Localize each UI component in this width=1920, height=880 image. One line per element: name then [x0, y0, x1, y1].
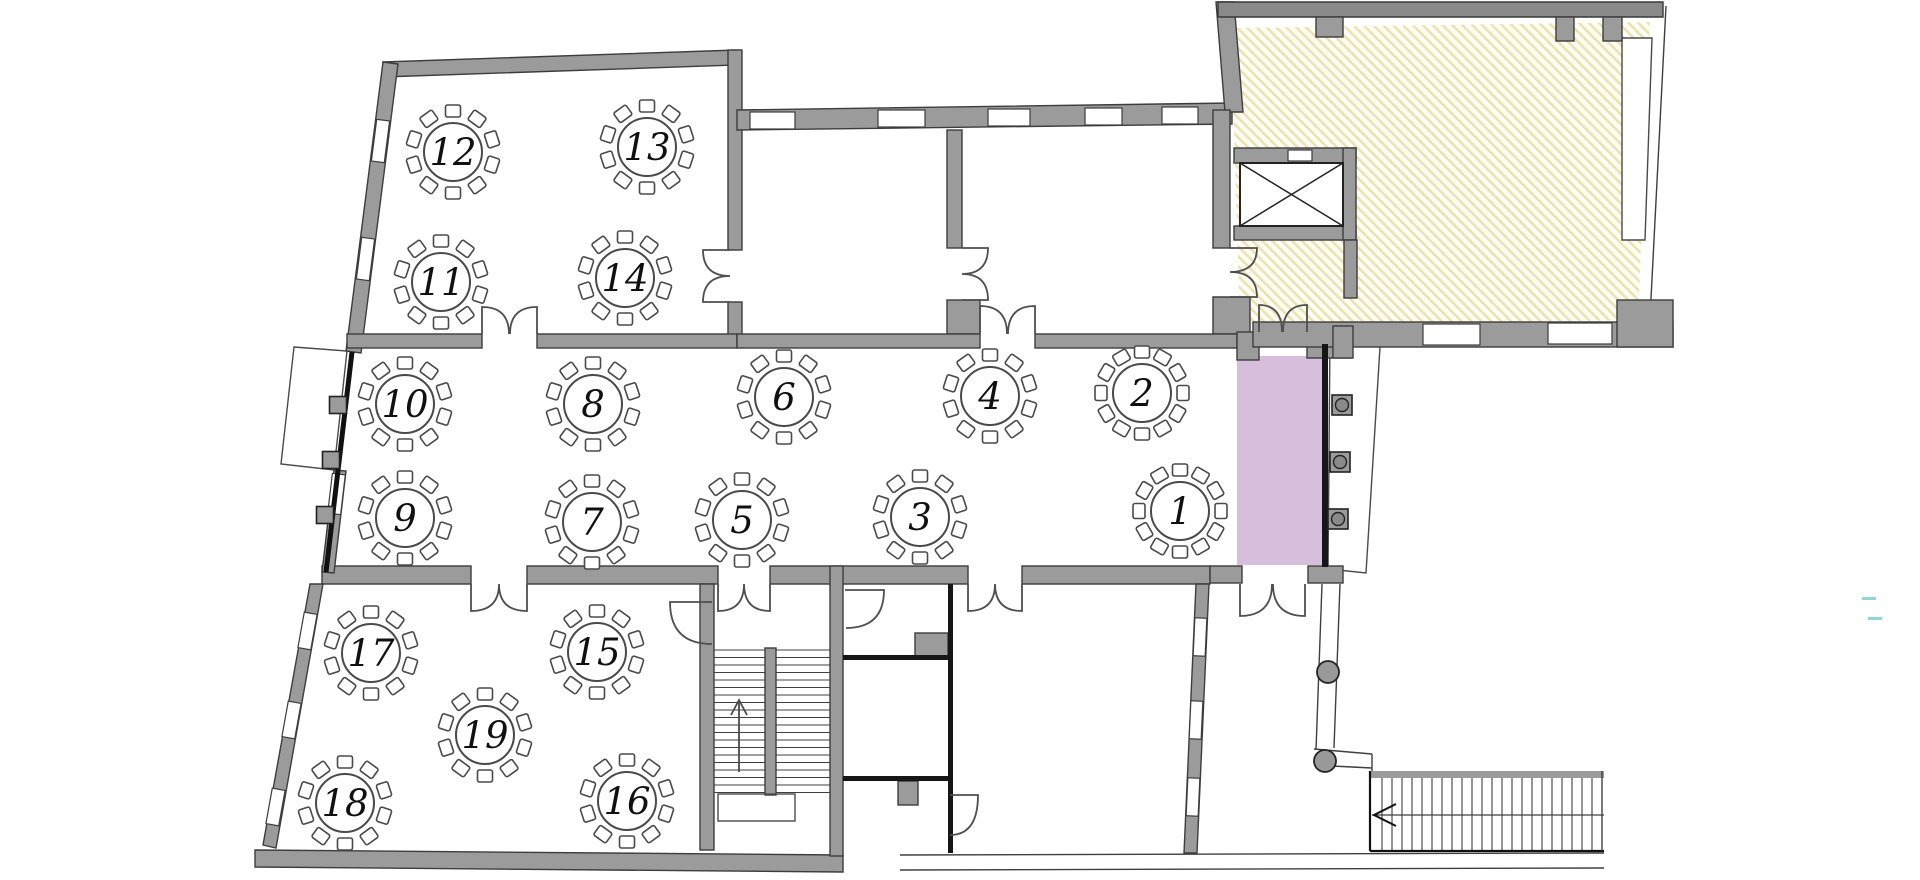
chair — [586, 357, 601, 369]
chair — [578, 256, 594, 274]
table-3: 3 — [873, 470, 967, 564]
table-10: 10 — [358, 357, 452, 451]
table-2: 2 — [1095, 346, 1189, 440]
chair — [558, 480, 577, 499]
chair — [436, 382, 452, 400]
chair — [1191, 467, 1210, 485]
chair — [678, 125, 694, 143]
chair — [1169, 404, 1187, 423]
table-number: 19 — [461, 714, 508, 757]
chair — [420, 428, 439, 447]
window — [282, 701, 301, 739]
door — [845, 590, 884, 628]
chair — [1150, 467, 1169, 485]
wall-vestibule-tab-2 — [898, 781, 918, 805]
chair — [623, 526, 639, 544]
chair — [550, 630, 566, 648]
chair — [402, 657, 418, 675]
wall-stairwell-right — [830, 566, 843, 856]
chair — [640, 100, 655, 112]
column — [1317, 661, 1339, 683]
exterior-staircase — [1370, 771, 1604, 851]
column — [1314, 750, 1336, 772]
double-door — [1240, 584, 1305, 616]
chair — [586, 439, 601, 451]
chair — [593, 825, 612, 844]
chair — [298, 781, 314, 799]
chair — [913, 470, 928, 482]
chair — [563, 610, 582, 629]
chair — [436, 408, 452, 426]
table-4: 4 — [943, 349, 1037, 443]
chair — [695, 524, 711, 542]
chair — [613, 171, 632, 190]
table-8: 8 — [546, 357, 640, 451]
table-12: 12 — [406, 105, 500, 199]
chair — [360, 827, 379, 846]
chair — [873, 521, 889, 539]
chair — [516, 713, 532, 731]
table-18: 18 — [298, 756, 392, 850]
chair — [371, 428, 390, 447]
chair — [1021, 374, 1037, 392]
double-door — [703, 250, 730, 302]
chair — [815, 375, 831, 393]
window — [878, 110, 925, 127]
chair — [1207, 481, 1225, 500]
table-number: 16 — [603, 780, 650, 823]
chair — [662, 171, 681, 190]
table-number: 3 — [908, 496, 932, 539]
table-number: 9 — [393, 497, 417, 540]
table-number: 1 — [1168, 490, 1192, 533]
table-number: 12 — [429, 131, 476, 174]
table-number: 5 — [730, 499, 754, 542]
table-9: 9 — [358, 471, 452, 565]
chair — [750, 421, 769, 440]
wall-elevator-right-lower — [1344, 240, 1357, 298]
chair — [757, 544, 776, 563]
chair — [608, 428, 627, 447]
wall-vestibule-h1 — [843, 655, 953, 660]
chair — [468, 110, 487, 129]
window — [1193, 618, 1207, 657]
table-number: 8 — [581, 383, 605, 426]
window — [1288, 150, 1312, 161]
window — [1162, 107, 1198, 124]
wall-topmid-divider — [947, 130, 962, 248]
chair — [600, 125, 616, 143]
chair — [935, 541, 954, 560]
chair — [376, 781, 392, 799]
chair — [678, 151, 694, 169]
chair — [559, 428, 578, 447]
chair — [618, 313, 633, 325]
tables-layer: 12345678910111213141516171819 — [298, 100, 1227, 850]
table-19: 19 — [438, 688, 532, 782]
double-door — [471, 584, 527, 611]
chair — [338, 838, 353, 850]
chair — [585, 475, 600, 487]
chair — [446, 105, 461, 117]
chair — [456, 306, 475, 325]
chair — [394, 260, 410, 278]
chair — [585, 557, 600, 569]
window — [298, 612, 317, 650]
chair — [956, 420, 975, 439]
chair — [484, 130, 500, 148]
chair — [1215, 504, 1227, 519]
chair — [935, 475, 954, 494]
chair — [612, 610, 631, 629]
chair — [642, 825, 661, 844]
chair — [406, 130, 422, 148]
chair — [420, 542, 439, 561]
table-number: 2 — [1129, 372, 1154, 415]
chair — [478, 688, 493, 700]
double-door — [980, 306, 1035, 334]
chair — [708, 544, 727, 563]
main-staircase — [714, 648, 830, 821]
window — [1423, 324, 1480, 345]
table-14: 14 — [578, 231, 672, 325]
table-number: 13 — [623, 126, 670, 169]
wall-vestibule-tab-1 — [915, 633, 948, 657]
wall-room2-corner — [1213, 297, 1250, 334]
chair — [546, 382, 562, 400]
column — [1336, 399, 1349, 412]
floor-plan: 12345678910111213141516171819 — [0, 0, 1920, 880]
table-6: 6 — [737, 350, 831, 444]
chair — [590, 605, 605, 617]
chair — [545, 500, 561, 518]
chair — [873, 495, 889, 513]
chair — [591, 236, 610, 255]
chair — [337, 611, 356, 630]
chair — [324, 657, 340, 675]
chair — [1153, 420, 1172, 438]
table-number: 6 — [772, 376, 796, 419]
double-door — [962, 248, 988, 300]
pilaster-1 — [1316, 17, 1343, 37]
column — [323, 452, 340, 469]
chair — [624, 408, 640, 426]
artifact-mark — [1868, 617, 1882, 620]
chair — [398, 439, 413, 451]
chair — [545, 526, 561, 544]
chair — [662, 105, 681, 124]
chair — [628, 656, 644, 674]
chair — [708, 478, 727, 497]
chair — [590, 687, 605, 699]
chair — [656, 282, 672, 300]
chair — [386, 611, 405, 630]
wall-topleft-right — [728, 50, 742, 250]
wall-topmid-divider-stub — [947, 300, 980, 334]
stair-treads — [1382, 778, 1592, 850]
chair — [1112, 420, 1131, 438]
stair-landing — [718, 794, 795, 821]
table-16: 16 — [580, 754, 674, 848]
chair — [407, 240, 426, 259]
chair — [451, 759, 470, 778]
chair — [815, 401, 831, 419]
chair — [943, 400, 959, 418]
wall-stairwell-left — [700, 584, 714, 850]
chair — [593, 759, 612, 778]
chair — [913, 552, 928, 564]
chair — [1098, 363, 1116, 382]
artifact-mark — [1862, 597, 1876, 600]
chair — [398, 357, 413, 369]
chair — [640, 236, 659, 255]
chair — [620, 754, 635, 766]
chair — [438, 739, 454, 757]
walkway-line — [900, 853, 1604, 855]
chair — [951, 495, 967, 513]
chair — [737, 401, 753, 419]
chair — [398, 471, 413, 483]
terrace-outer-edge — [1650, 6, 1666, 318]
wall-hall-bottom-cap-left — [1210, 566, 1242, 583]
chair — [436, 496, 452, 514]
chair — [1150, 538, 1169, 556]
window — [1548, 323, 1612, 344]
chair — [607, 480, 626, 499]
chair — [735, 473, 750, 485]
chair — [580, 779, 596, 797]
chair — [1153, 349, 1172, 367]
wall-bottom — [255, 850, 843, 872]
chair — [563, 676, 582, 695]
chair — [371, 542, 390, 561]
chair — [1191, 538, 1210, 556]
pilaster-3 — [1603, 17, 1622, 41]
table-7: 7 — [545, 475, 639, 569]
chair — [618, 231, 633, 243]
chair — [1136, 481, 1154, 500]
chair — [983, 349, 998, 361]
chair — [695, 498, 711, 516]
wall-vestibule-vertical — [948, 584, 953, 853]
wall-hall-bottom-1 — [322, 566, 471, 584]
chair — [612, 676, 631, 695]
chair — [364, 606, 379, 618]
chair — [358, 522, 374, 540]
chair — [337, 677, 356, 696]
chair — [364, 688, 379, 700]
exterior-corridor — [900, 584, 1604, 870]
table-number: 15 — [573, 631, 620, 674]
door — [950, 795, 978, 835]
wall-hall-bottom-2 — [527, 566, 718, 584]
chair — [658, 779, 674, 797]
wall-stage-right-line — [1322, 344, 1328, 567]
column — [317, 507, 334, 524]
chair — [886, 475, 905, 494]
chair — [1173, 546, 1188, 558]
chair — [777, 432, 792, 444]
chair — [1021, 400, 1037, 418]
floor-plan-svg: 12345678910111213141516171819 — [0, 0, 1920, 880]
chair — [358, 408, 374, 426]
chair — [484, 156, 500, 174]
window — [1186, 778, 1200, 817]
wall-topmid-top — [737, 103, 1232, 130]
stair-divider — [765, 648, 776, 795]
chair — [446, 187, 461, 199]
wall-topleft-top — [383, 50, 737, 77]
chair — [640, 182, 655, 194]
chair — [624, 382, 640, 400]
chair — [436, 522, 452, 540]
chair — [580, 805, 596, 823]
terrace-recess — [1622, 38, 1652, 240]
wall-hall-bottom-cap-right — [1308, 566, 1343, 583]
chair — [750, 355, 769, 374]
chair — [376, 807, 392, 825]
column — [1334, 456, 1347, 469]
chair — [600, 151, 616, 169]
chair — [500, 693, 519, 712]
chair — [1005, 420, 1024, 439]
double-door — [718, 584, 770, 611]
wall-topright-slant — [1216, 2, 1243, 112]
chair — [451, 693, 470, 712]
chair — [628, 630, 644, 648]
chair — [735, 555, 750, 567]
table-number: 4 — [977, 375, 1002, 418]
elevator — [1240, 163, 1343, 226]
window — [988, 109, 1030, 126]
chair — [1005, 354, 1024, 373]
chair — [394, 286, 410, 304]
chair — [398, 553, 413, 565]
chair — [656, 256, 672, 274]
table-number: 14 — [601, 257, 648, 300]
chair — [591, 302, 610, 321]
chair — [642, 759, 661, 778]
table-number: 11 — [417, 261, 464, 304]
chair — [608, 362, 627, 381]
chair — [799, 421, 818, 440]
double-door — [482, 307, 537, 334]
chair — [516, 739, 532, 757]
chair — [358, 382, 374, 400]
chair — [402, 631, 418, 649]
table-number: 7 — [580, 501, 604, 544]
chair — [757, 478, 776, 497]
chair — [607, 546, 626, 565]
wall-corridor-block — [1333, 326, 1353, 358]
chair — [298, 807, 314, 825]
wall-hall-bottom-4 — [1022, 566, 1210, 584]
chair — [472, 260, 488, 278]
chair — [419, 110, 438, 129]
chair — [1177, 386, 1189, 401]
chair — [956, 354, 975, 373]
column — [330, 397, 347, 414]
chair — [407, 306, 426, 325]
window — [1189, 701, 1203, 740]
table-number: 17 — [347, 632, 395, 675]
artifact-marks — [1862, 597, 1882, 620]
chair — [1169, 363, 1187, 382]
chair — [640, 302, 659, 321]
chair — [1135, 428, 1150, 440]
wall-hall-top-1 — [347, 334, 482, 348]
wall-elevator-bottom — [1234, 226, 1356, 240]
chair — [1207, 522, 1225, 541]
window — [266, 788, 285, 826]
chair — [578, 282, 594, 300]
chair — [500, 759, 519, 778]
chair — [613, 105, 632, 124]
chair — [468, 176, 487, 195]
chair — [311, 761, 330, 780]
chair — [1112, 349, 1131, 367]
window — [1085, 108, 1122, 125]
chair — [558, 546, 577, 565]
chair — [886, 541, 905, 560]
chair — [658, 805, 674, 823]
chair — [1133, 504, 1145, 519]
chair — [371, 476, 390, 495]
chair — [456, 240, 475, 259]
table-11: 11 — [394, 235, 488, 329]
table-number: 18 — [321, 782, 368, 825]
corridor-line — [1332, 766, 1372, 768]
wall-terrace-bottom-end — [1617, 300, 1673, 347]
chair — [777, 350, 792, 362]
chair — [406, 156, 422, 174]
chair — [420, 476, 439, 495]
chair — [1135, 346, 1150, 358]
chair — [386, 677, 405, 696]
chair — [559, 362, 578, 381]
stair-top-band — [1370, 771, 1604, 778]
chair — [360, 761, 379, 780]
double-door — [968, 584, 1022, 611]
chair — [438, 713, 454, 731]
chair — [419, 176, 438, 195]
chair — [620, 836, 635, 848]
wall-topleft-right-stub — [728, 302, 742, 338]
chair — [420, 362, 439, 381]
wall-hall-bottom-3 — [770, 566, 968, 584]
wall-hall-top-3 — [737, 334, 980, 348]
window — [750, 112, 795, 129]
chair — [773, 498, 789, 516]
chair — [951, 521, 967, 539]
chair — [773, 524, 789, 542]
chair — [358, 496, 374, 514]
pilaster-2 — [1556, 17, 1574, 41]
chair — [311, 827, 330, 846]
balcony-columns — [1328, 395, 1352, 529]
chair — [943, 374, 959, 392]
chair — [623, 500, 639, 518]
wall-hall-top-2 — [537, 334, 737, 348]
table-13: 13 — [600, 100, 694, 194]
table-number: 10 — [381, 383, 428, 426]
chair — [478, 770, 493, 782]
chair — [434, 317, 449, 329]
walkway-line — [900, 868, 1604, 870]
chair — [338, 756, 353, 768]
wall-topleft-left — [346, 62, 398, 353]
wall-terrace-top — [1218, 2, 1663, 17]
